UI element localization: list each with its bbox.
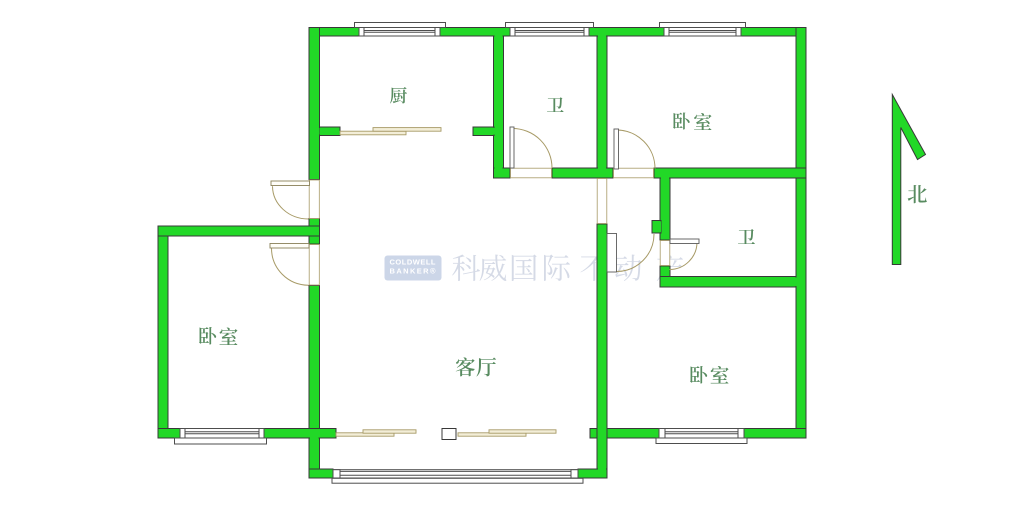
svg-text:BANKER®: BANKER® [390, 267, 436, 276]
svg-text:COLDWELL: COLDWELL [390, 258, 436, 267]
